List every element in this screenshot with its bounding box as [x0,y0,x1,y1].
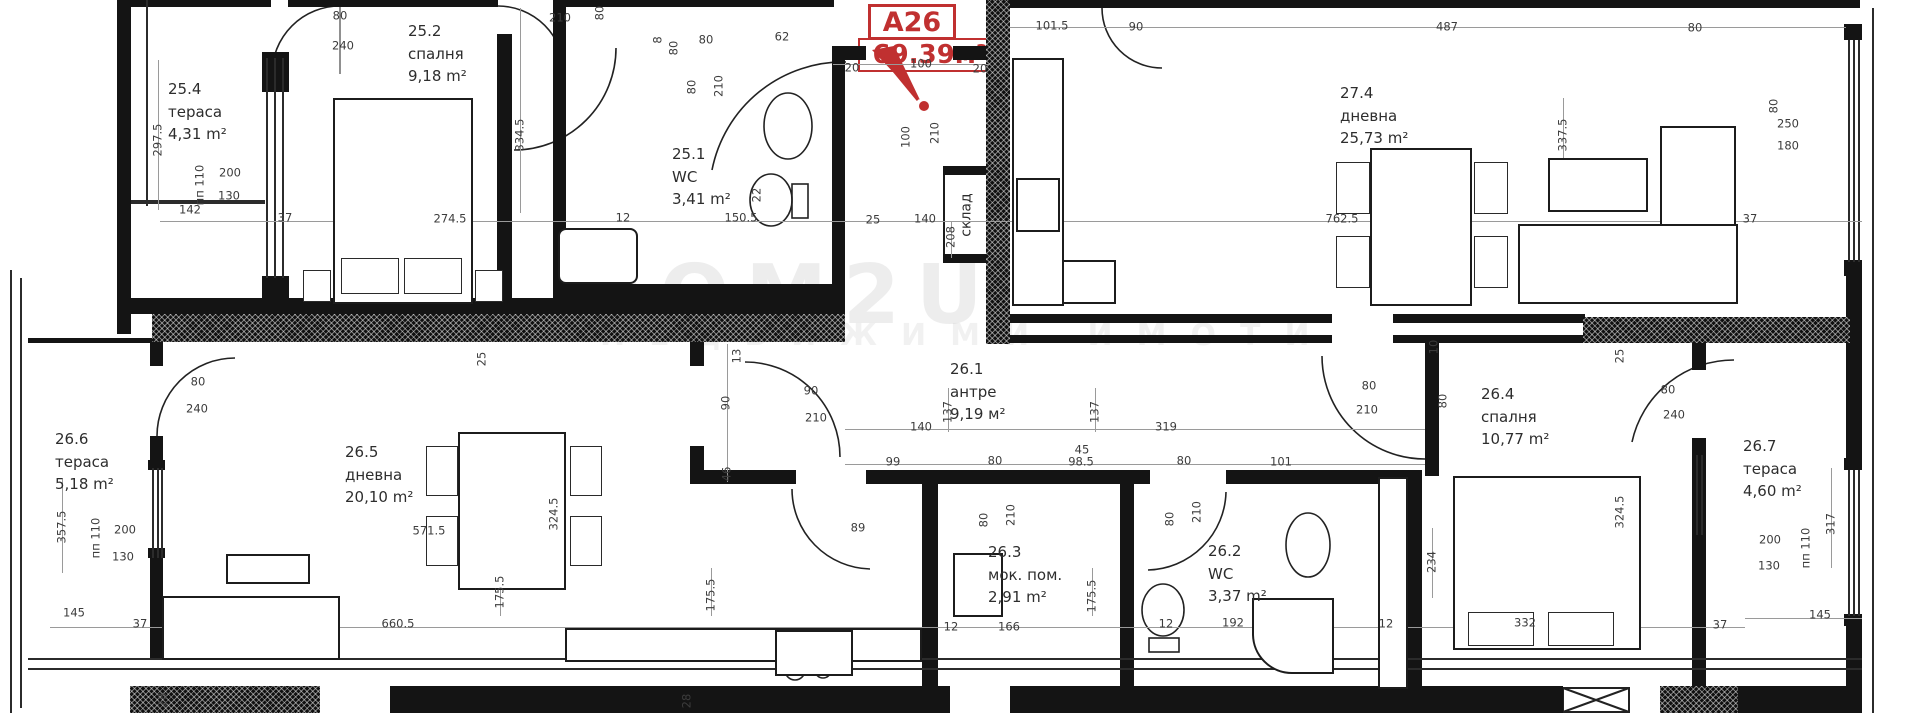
dimension-label: 180 [1777,140,1799,152]
dimension-label: 317 [1825,513,1837,535]
dimension-label: 210 [713,75,725,97]
wall-line [20,278,22,708]
shower [1252,598,1334,674]
wall [922,470,938,712]
nightstand [475,270,503,302]
dimension-label: 210 [549,12,571,24]
wall [1846,342,1862,460]
wall-hatched [986,0,1010,344]
dimension-label: 210 [805,412,827,424]
wall-line [28,668,1862,670]
chair [426,446,458,496]
dimension-label: 80 [1177,455,1192,467]
chair [1474,162,1508,214]
wall-line [282,58,284,278]
wall-line [1872,8,1874,713]
dimension-label: 762.5 [1326,213,1359,225]
wall [131,0,271,7]
wall-line [1853,40,1855,262]
dimension-label: 37 [1713,619,1728,631]
wall-line [1848,40,1850,262]
dimension-label: 234 [1426,551,1438,573]
wall [1010,335,1332,343]
wall [1692,438,1706,712]
dimension-label: 22 [751,188,763,203]
dimension-label: 210 [1191,501,1203,523]
wall-line [146,0,148,206]
dimension-label: 145 [63,607,85,619]
dimension-label: 99 [886,456,901,468]
wall-line [152,468,154,558]
wall [288,0,498,7]
wall [1738,686,1862,713]
wall-line [1701,455,1703,535]
wall [832,46,866,60]
dimension-label: 210 [929,122,941,144]
dimension-label: 334.5 [514,119,526,152]
wall [117,0,131,334]
dimension-label: 140 [910,421,932,433]
dimension-label: 25 [866,214,881,226]
dimension-label: 25 [1614,349,1626,364]
sofa [162,596,340,660]
dimension-label: 28 [157,693,169,708]
dimension-label: 25 [476,352,488,367]
dimension-label: 12 [616,212,631,224]
wall [150,342,163,366]
wall [943,166,990,175]
wall-hatched [152,314,845,342]
chair [1336,236,1370,288]
dimension-label: 192 [1222,617,1244,629]
chair [1474,236,1508,288]
dimension-label: 250 [1777,118,1799,130]
wall-line [10,270,12,713]
dimension-label: 80 [1688,22,1703,34]
wall [1393,314,1585,323]
room-label-26.3: 26.3мок. пом.2,91 m² [988,541,1062,609]
dimension-label: 210 [1005,504,1017,526]
chair [570,516,602,566]
wall [1844,260,1862,276]
wall [1844,24,1862,40]
dimension-label: 12 [1379,618,1394,630]
dimension-label: 145 [1809,609,1831,621]
wall-hatched [1583,317,1850,343]
coffee-table [1548,158,1648,212]
dimension-label: 80 [1437,394,1449,409]
dimension-label: 200 [114,524,136,536]
room-label-25.1: 25.1WC3,41 m² [672,143,731,211]
dimension-label: 137 [1089,401,1101,423]
dimension-label: 130 [1758,560,1780,572]
dimension-label: 200 [1759,534,1781,546]
dimension-label: 240 [186,403,208,415]
room-label-25.2: 25.2спалня9,18 m² [408,20,467,88]
dimension-label: 28 [681,694,693,709]
room-label-26.7: 26.7тераса4,60 m² [1743,435,1802,503]
wall [1425,342,1439,476]
dimension-label: 101 [1270,456,1292,468]
dimension-label: 37 [133,618,148,630]
dimension-label: 357.5 [56,511,68,544]
dimension-label: 80 [594,6,606,21]
floor-plan: НОМ2U НЕДВИЖИМИ ИМОТИ A26 69.39м² склад … [0,0,1920,715]
wall [953,46,988,60]
stove [775,630,853,676]
chair [1336,162,1370,214]
dimension-label: 324.5 [548,498,560,531]
dimension-label: 210 [1356,404,1378,416]
dimension-label: 89 [851,522,866,534]
wall [390,686,950,713]
dimension-label: 80 [333,10,348,22]
wall [690,342,704,366]
dimension-label: 571.5 [413,525,446,537]
dining-table [1370,148,1472,306]
dimension-label: 150.5 [725,212,758,224]
dimension-line [845,464,1425,465]
dimension-label: пп 110 [90,518,102,559]
pillow [404,258,462,294]
dimension-label: 337.5 [1557,119,1569,152]
dimension-label: 274.5 [434,213,467,225]
dimension-label: пп 110 [194,165,206,206]
pillow [341,258,399,294]
dimension-label: 80 [1661,384,1676,396]
dimension-label: 80 [699,34,714,46]
wall [28,338,152,343]
dimension-label: 62 [775,31,790,43]
dimension-label: 46 [721,467,733,482]
dimension-label: 20 [973,63,988,75]
wall [690,470,796,484]
dimension-label: 20 [845,62,860,74]
dimension-label: 175.5 [494,576,506,609]
dimension-label: 80 [1768,99,1780,114]
dimension-label: 175.5 [1086,580,1098,613]
dimension-label: 98.5 [1068,456,1094,468]
wall-line [1858,40,1860,262]
dimension-label: 319 [1155,421,1177,433]
wall [1408,470,1422,712]
wardrobe [1378,477,1408,689]
wall-line [1858,470,1860,616]
dimension-label: 240 [332,40,354,52]
dimension-label: 80 [668,41,680,56]
dimension-label: 297.5 [152,124,164,157]
dimension-label: 100 [910,58,932,70]
dimension-label: 12 [944,621,959,633]
dimension-label: 80 [988,455,1003,467]
dimension-label: 660.5 [382,618,415,630]
chair [570,446,602,496]
room-label-26.5: 26.5дневна20,10 m² [345,441,413,509]
wall-line [1696,455,1698,535]
dimension-label: 10 [1428,340,1440,355]
dimension-label: 90 [1129,21,1144,33]
nightstand [303,270,331,302]
dimension-label: 130 [112,551,134,563]
dimension-label: 175.5 [705,579,717,612]
room-label-26.4: 26.4спалня10,77 m² [1481,383,1549,451]
wall-line [1853,470,1855,616]
dimension-label: 80 [1362,380,1377,392]
dimension-label: 8 [652,36,664,43]
dimension-label: 140 [914,213,936,225]
dimension-label: пп 110 [1800,528,1812,569]
wall [866,470,1150,484]
dimension-label: 80 [686,80,698,95]
dimension-label: 200 [219,167,241,179]
wall [1010,686,1563,713]
dimension-label: 80 [1164,512,1176,527]
sofa [1518,224,1738,304]
pillow [1548,612,1614,646]
room-label-27.4: 27.4дневна25,73 m² [1340,82,1408,150]
kitchen-sink [1016,178,1060,232]
dimension-label: 90 [720,396,732,411]
dimension-line [845,429,1425,430]
dimension-label: 90 [804,385,819,397]
dimension-label: 13 [731,349,743,364]
dimension-label: 487 [1436,21,1458,33]
dimension-label: 208 [945,226,957,248]
wall [1010,314,1332,323]
dimension-label: 37 [1743,213,1758,225]
wall-line [274,58,276,278]
dimension-label: 101.5 [1036,20,1069,32]
dimension-label: 332 [1514,617,1536,629]
room-label-26.1: 26.1антре9,19 м² [950,358,1006,426]
dimension-label: 80 [978,513,990,528]
stove [1062,260,1116,304]
dimension-label: 137 [942,401,954,423]
dimension-label: 166 [998,621,1020,633]
wall-line [157,468,159,558]
room-label-26.6: 26.6тераса5,18 m² [55,428,114,496]
wall [1120,470,1134,712]
dimension-line [520,8,521,213]
wall-line [266,58,268,278]
room-label-25.4: 25.4тераса4,31 m² [168,78,227,146]
kitchen-counter [565,628,922,662]
room-label-26.2: 26.2WC3,37 m² [1208,540,1267,608]
wall-line [1848,470,1850,616]
wall-line [161,468,163,558]
dimension-label: 80 [191,376,206,388]
dimension-label: 130 [218,190,240,202]
dimension-label: 37 [278,212,293,224]
dimension-line [1745,618,1862,619]
wall [1010,0,1860,8]
dimension-label: 142 [179,204,201,216]
bathtub [558,228,638,284]
dimension-label: 324.5 [1614,496,1626,529]
dimension-label: 12 [1159,618,1174,630]
wall [1692,342,1706,370]
dimension-label: 100 [900,126,912,148]
dimension-line [727,344,728,482]
dimension-label: 240 [1663,409,1685,421]
wall-hatched [1660,686,1738,713]
coffee-table [226,554,310,584]
wall [1393,335,1585,343]
